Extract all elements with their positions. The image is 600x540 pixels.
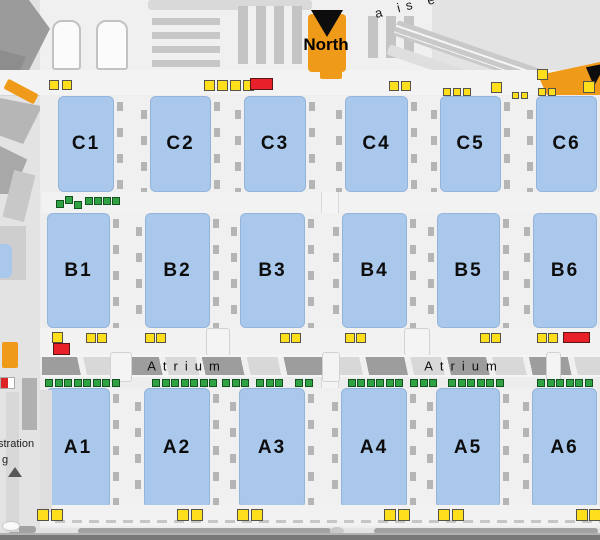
hall-A6[interactable]: A6 — [532, 388, 597, 508]
atrium-crossing — [546, 352, 561, 382]
bridge-link — [404, 328, 430, 356]
yellow-marker-icon — [156, 333, 166, 343]
north-access-road — [0, 70, 600, 96]
green-marker-icon — [102, 379, 110, 387]
green-marker-icon — [266, 379, 274, 387]
green-marker-icon — [486, 379, 494, 387]
hall-corridor — [210, 388, 239, 508]
west-hall-edge — [0, 244, 12, 278]
yellow-marker-icon — [548, 88, 556, 96]
green-marker-icon — [209, 379, 217, 387]
green-marker-icon — [241, 379, 249, 387]
hall-B5[interactable]: B5 — [437, 213, 500, 328]
north-label: North — [294, 35, 358, 55]
green-marker-icon — [496, 379, 504, 387]
green-marker-icon — [386, 379, 394, 387]
yellow-marker-icon — [52, 332, 63, 343]
red-marker-icon — [250, 78, 273, 90]
yellow-marker-icon — [191, 509, 203, 521]
yellow-marker-icon — [345, 333, 355, 343]
green-marker-icon — [74, 201, 82, 209]
green-marker-icon — [190, 379, 198, 387]
hall-C2[interactable]: C2 — [150, 96, 211, 192]
hall-A4[interactable]: A4 — [341, 388, 407, 508]
green-marker-icon — [467, 379, 475, 387]
green-marker-icon — [585, 379, 593, 387]
green-marker-icon — [305, 379, 313, 387]
hall-A2[interactable]: A2 — [144, 388, 210, 508]
yellow-marker-icon — [51, 509, 63, 521]
yellow-marker-icon — [291, 333, 301, 343]
green-marker-icon — [171, 379, 179, 387]
green-marker-icon — [537, 379, 545, 387]
road-end-oval — [2, 521, 20, 531]
green-marker-icon — [56, 200, 64, 208]
yellow-marker-icon — [237, 509, 249, 521]
hall-corridor — [305, 213, 342, 328]
green-marker-icon — [55, 379, 63, 387]
south-road — [0, 533, 600, 540]
aid-station-icon — [0, 377, 15, 389]
yellow-marker-icon — [86, 333, 96, 343]
yellow-marker-icon — [576, 509, 588, 521]
skylight — [52, 20, 81, 70]
curb-ticks — [55, 520, 600, 523]
hall-A3[interactable]: A3 — [239, 388, 305, 508]
hall-corridor — [305, 388, 341, 508]
red-marker-icon — [53, 343, 70, 355]
yellow-marker-icon — [538, 88, 546, 96]
hall-corridor — [210, 213, 240, 328]
green-marker-icon — [232, 379, 240, 387]
hall-C6[interactable]: C6 — [536, 96, 597, 192]
green-marker-icon — [575, 379, 583, 387]
green-marker-icon — [85, 197, 93, 205]
hall-A1[interactable]: A1 — [46, 388, 110, 508]
hall-corridor — [110, 213, 145, 328]
atrium-label: Atrium — [424, 359, 504, 374]
yellow-marker-icon — [97, 333, 107, 343]
yellow-marker-icon — [463, 88, 471, 96]
green-marker-icon — [275, 379, 283, 387]
yellow-marker-icon — [438, 509, 450, 521]
yellow-marker-icon — [384, 509, 396, 521]
hall-B1[interactable]: B1 — [47, 213, 110, 328]
hall-corridor — [500, 388, 532, 508]
hall-corridor — [407, 388, 436, 508]
west-entrance-marker — [2, 342, 18, 368]
yellow-marker-icon — [453, 88, 461, 96]
yellow-marker-icon — [217, 80, 228, 91]
hall-corridor — [500, 213, 533, 328]
registration-wall — [40, 390, 52, 512]
green-marker-icon — [103, 197, 111, 205]
atrium-crossing — [110, 352, 132, 382]
yellow-marker-icon — [521, 92, 528, 99]
green-marker-icon — [65, 196, 73, 204]
yellow-marker-icon — [401, 81, 411, 91]
green-marker-icon — [376, 379, 384, 387]
green-marker-icon — [83, 379, 91, 387]
hall-B4[interactable]: B4 — [342, 213, 407, 328]
yellow-marker-icon — [452, 509, 464, 521]
green-marker-icon — [64, 379, 72, 387]
yellow-marker-icon — [548, 333, 558, 343]
yellow-marker-icon — [491, 333, 501, 343]
green-marker-icon — [93, 379, 101, 387]
green-marker-icon — [458, 379, 466, 387]
green-marker-icon — [112, 379, 120, 387]
yellow-marker-icon — [480, 333, 490, 343]
green-marker-icon — [222, 379, 230, 387]
yellow-marker-icon — [512, 92, 519, 99]
green-marker-icon — [357, 379, 365, 387]
hall-corridor — [501, 96, 536, 192]
yellow-marker-icon — [589, 509, 600, 521]
hall-corridor — [114, 96, 150, 192]
green-marker-icon — [367, 379, 375, 387]
yellow-marker-icon — [145, 333, 155, 343]
hall-corridor — [110, 388, 144, 508]
green-marker-icon — [547, 379, 555, 387]
bridge-link — [206, 328, 230, 356]
green-marker-icon — [429, 379, 437, 387]
registration-label-fragment: stration — [0, 438, 34, 450]
green-marker-icon — [395, 379, 403, 387]
green-marker-icon — [152, 379, 160, 387]
hall-corridor — [306, 96, 345, 192]
yellow-marker-icon — [583, 81, 595, 93]
atrium-crossing — [322, 352, 340, 382]
red-marker-icon — [563, 332, 590, 343]
hall-C3[interactable]: C3 — [244, 96, 306, 192]
yellow-marker-icon — [204, 80, 215, 91]
yellow-marker-icon — [62, 80, 72, 90]
green-marker-icon — [181, 379, 189, 387]
green-marker-icon — [566, 379, 574, 387]
yellow-marker-icon — [356, 333, 366, 343]
green-marker-icon — [448, 379, 456, 387]
green-marker-icon — [45, 379, 53, 387]
green-marker-icon — [162, 379, 170, 387]
green-marker-icon — [556, 379, 564, 387]
hall-B3[interactable]: B3 — [240, 213, 305, 328]
yellow-marker-icon — [177, 509, 189, 521]
green-marker-icon — [200, 379, 208, 387]
exhibition-floor-map: a is e North C1C2C3C4C5C6B1B2B3B4B5B6A1A… — [0, 0, 600, 540]
green-marker-icon — [348, 379, 356, 387]
hall-B2[interactable]: B2 — [145, 213, 210, 328]
skylight — [96, 20, 128, 70]
green-marker-icon — [112, 197, 120, 205]
yellow-marker-icon — [398, 509, 410, 521]
north-entrance-foot — [320, 66, 342, 79]
green-marker-icon — [420, 379, 428, 387]
green-marker-icon — [256, 379, 264, 387]
yellow-marker-icon — [49, 80, 59, 90]
registration-label-fragment-2: g — [2, 454, 8, 466]
north-arrow-icon — [311, 10, 343, 37]
yellow-marker-icon — [251, 509, 263, 521]
direction-arrow-icon — [8, 467, 22, 477]
hall-corridor — [211, 96, 244, 192]
hall-C1[interactable]: C1 — [58, 96, 114, 192]
green-marker-icon — [295, 379, 303, 387]
hall-corridor — [408, 96, 440, 192]
yellow-marker-icon — [537, 69, 548, 80]
green-marker-icon — [74, 379, 82, 387]
hall-B6[interactable]: B6 — [533, 213, 597, 328]
atrium-label: Atrium — [147, 359, 227, 374]
yellow-marker-icon — [537, 333, 547, 343]
building-block — [0, 98, 42, 144]
green-marker-icon — [477, 379, 485, 387]
roof-vents — [238, 6, 302, 64]
yellow-marker-icon — [230, 80, 241, 91]
green-marker-icon — [94, 197, 102, 205]
yellow-marker-icon — [37, 509, 49, 521]
yellow-marker-icon — [389, 81, 399, 91]
hall-C5[interactable]: C5 — [440, 96, 501, 192]
green-marker-icon — [410, 379, 418, 387]
yellow-marker-icon — [491, 82, 502, 93]
hall-corridor — [407, 213, 437, 328]
yellow-marker-icon — [280, 333, 290, 343]
hall-C4[interactable]: C4 — [345, 96, 408, 192]
roof-vents — [152, 18, 220, 68]
hall-A5[interactable]: A5 — [436, 388, 500, 508]
yellow-marker-icon — [443, 88, 451, 96]
registration-wall — [22, 378, 37, 430]
